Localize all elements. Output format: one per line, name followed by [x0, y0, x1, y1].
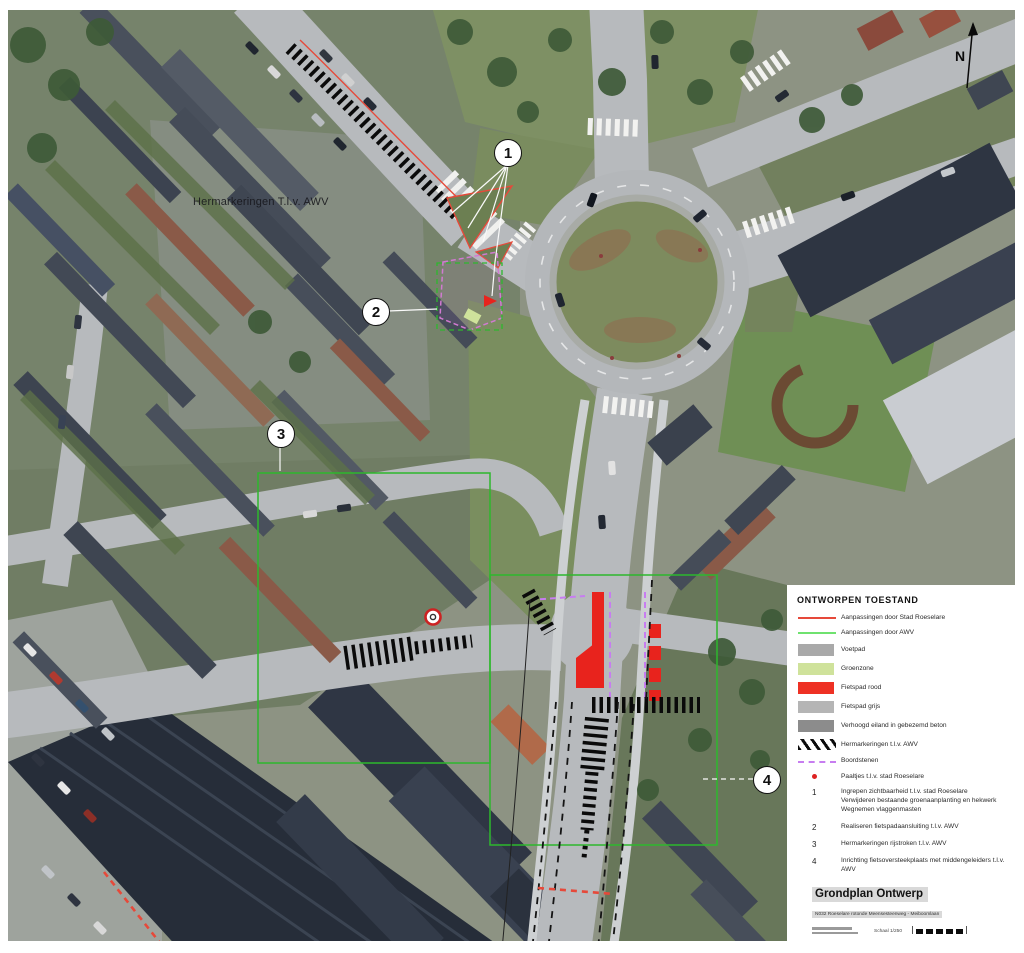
legend-swatch-fill [798, 663, 834, 675]
legend-note-text: Hermarkeringen rijstroken t.l.v. AWV [841, 840, 947, 849]
legend-item: Groenzone [795, 663, 1007, 675]
marker-1: 1 [494, 139, 522, 167]
legend-swatch-fill [798, 720, 834, 732]
legend-note-number: 4 [795, 857, 841, 875]
org-text-lines [812, 927, 858, 934]
legend-item-label: Boordstenen [841, 757, 878, 765]
legend-title: ONTWORPEN TOESTAND [797, 595, 1007, 605]
legend-item-label: Voetpad [841, 646, 865, 654]
legend-item-label: Paaltjes t.l.v. stad Roeselare [841, 773, 924, 781]
plan-title: Grondplan Ontwerp [812, 887, 928, 902]
legend-note: 3Hermarkeringen rijstroken t.l.v. AWV [795, 840, 1007, 849]
legend-swatch-fill [798, 701, 834, 713]
legend-item-label: Verhoogd eiland in gebezemd beton [841, 722, 947, 730]
legend-item-label: Hermarkeringen t.l.v. AWV [841, 741, 918, 749]
legend-item: Voetpad [795, 644, 1007, 656]
scale-bar [912, 926, 967, 934]
legend-item: Aanpassingen door AWV [795, 629, 1007, 637]
legend-note-number: 1 [795, 788, 841, 815]
legend-item: Paaltjes t.l.v. stad Roeselare [795, 773, 1007, 781]
legend-item: Aanpassingen door Stad Roeselare [795, 614, 1007, 622]
legend-swatch-line-dashed [798, 761, 836, 763]
roundabout [525, 170, 749, 394]
plan-subtitle: N032 Roeselare rotonde Meensesteenweg - … [812, 911, 942, 918]
legend-note: 4Inrichting fietsoversteekplaats met mid… [795, 857, 1007, 875]
legend-item: Fietspad grijs [795, 701, 1007, 713]
legend-item-label: Fietspad grijs [841, 703, 880, 711]
legend-notes: 1Ingrepen zichtbaarheid t.l.v. stad Roes… [795, 788, 1007, 874]
legend-swatch-fill [798, 644, 834, 656]
legend-item: Boordstenen [795, 757, 1007, 765]
legend-note: 1Ingrepen zichtbaarheid t.l.v. stad Roes… [795, 788, 1007, 815]
legend-item: Verhoogd eiland in gebezemd beton [795, 720, 1007, 732]
legend-item-label: Aanpassingen door Stad Roeselare [841, 614, 945, 622]
legend-note-number: 3 [795, 840, 841, 849]
legend-item-label: Aanpassingen door AWV [841, 629, 914, 637]
marker-3: 3 [267, 420, 295, 448]
legend-item-label: Groenzone [841, 665, 874, 673]
legend-note-number: 2 [795, 823, 841, 832]
scale-label: Schaal 1/250 [874, 929, 902, 934]
north-label: N [955, 48, 965, 64]
legend-swatch-line [798, 617, 836, 619]
plan-sheet: { "map": { "overlay_label": "Hermarkerin… [0, 0, 1024, 953]
map-annotation-text: Hermarkeringen T.l.v. AWV [193, 196, 329, 208]
legend-items: Aanpassingen door Stad RoeselareAanpassi… [795, 614, 1007, 781]
legend-note-text: Inrichting fietsoversteekplaats met midd… [841, 857, 1007, 875]
marker-2: 2 [362, 298, 390, 326]
legend-swatch-hatch [798, 739, 836, 750]
legend-note-text: Realiseren fietspadaansluiting t.l.v. AW… [841, 823, 959, 832]
marker-4: 4 [753, 766, 781, 794]
roundabout-sign [426, 610, 441, 625]
legend-item: Fietspad rood [795, 682, 1007, 694]
legend-item: Hermarkeringen t.l.v. AWV [795, 739, 1007, 750]
legend-swatch-fill [798, 682, 834, 694]
legend-swatch-line [798, 632, 836, 634]
legend-note-text: Ingrepen zichtbaarheid t.l.v. stad Roese… [841, 788, 996, 815]
legend-swatch-dot [812, 774, 817, 779]
title-block: Grondplan Ontwerp N032 Roeselare rotonde… [812, 884, 982, 934]
legend-note: 2Realiseren fietspadaansluiting t.l.v. A… [795, 823, 1007, 832]
legend-item-label: Fietspad rood [841, 684, 881, 692]
